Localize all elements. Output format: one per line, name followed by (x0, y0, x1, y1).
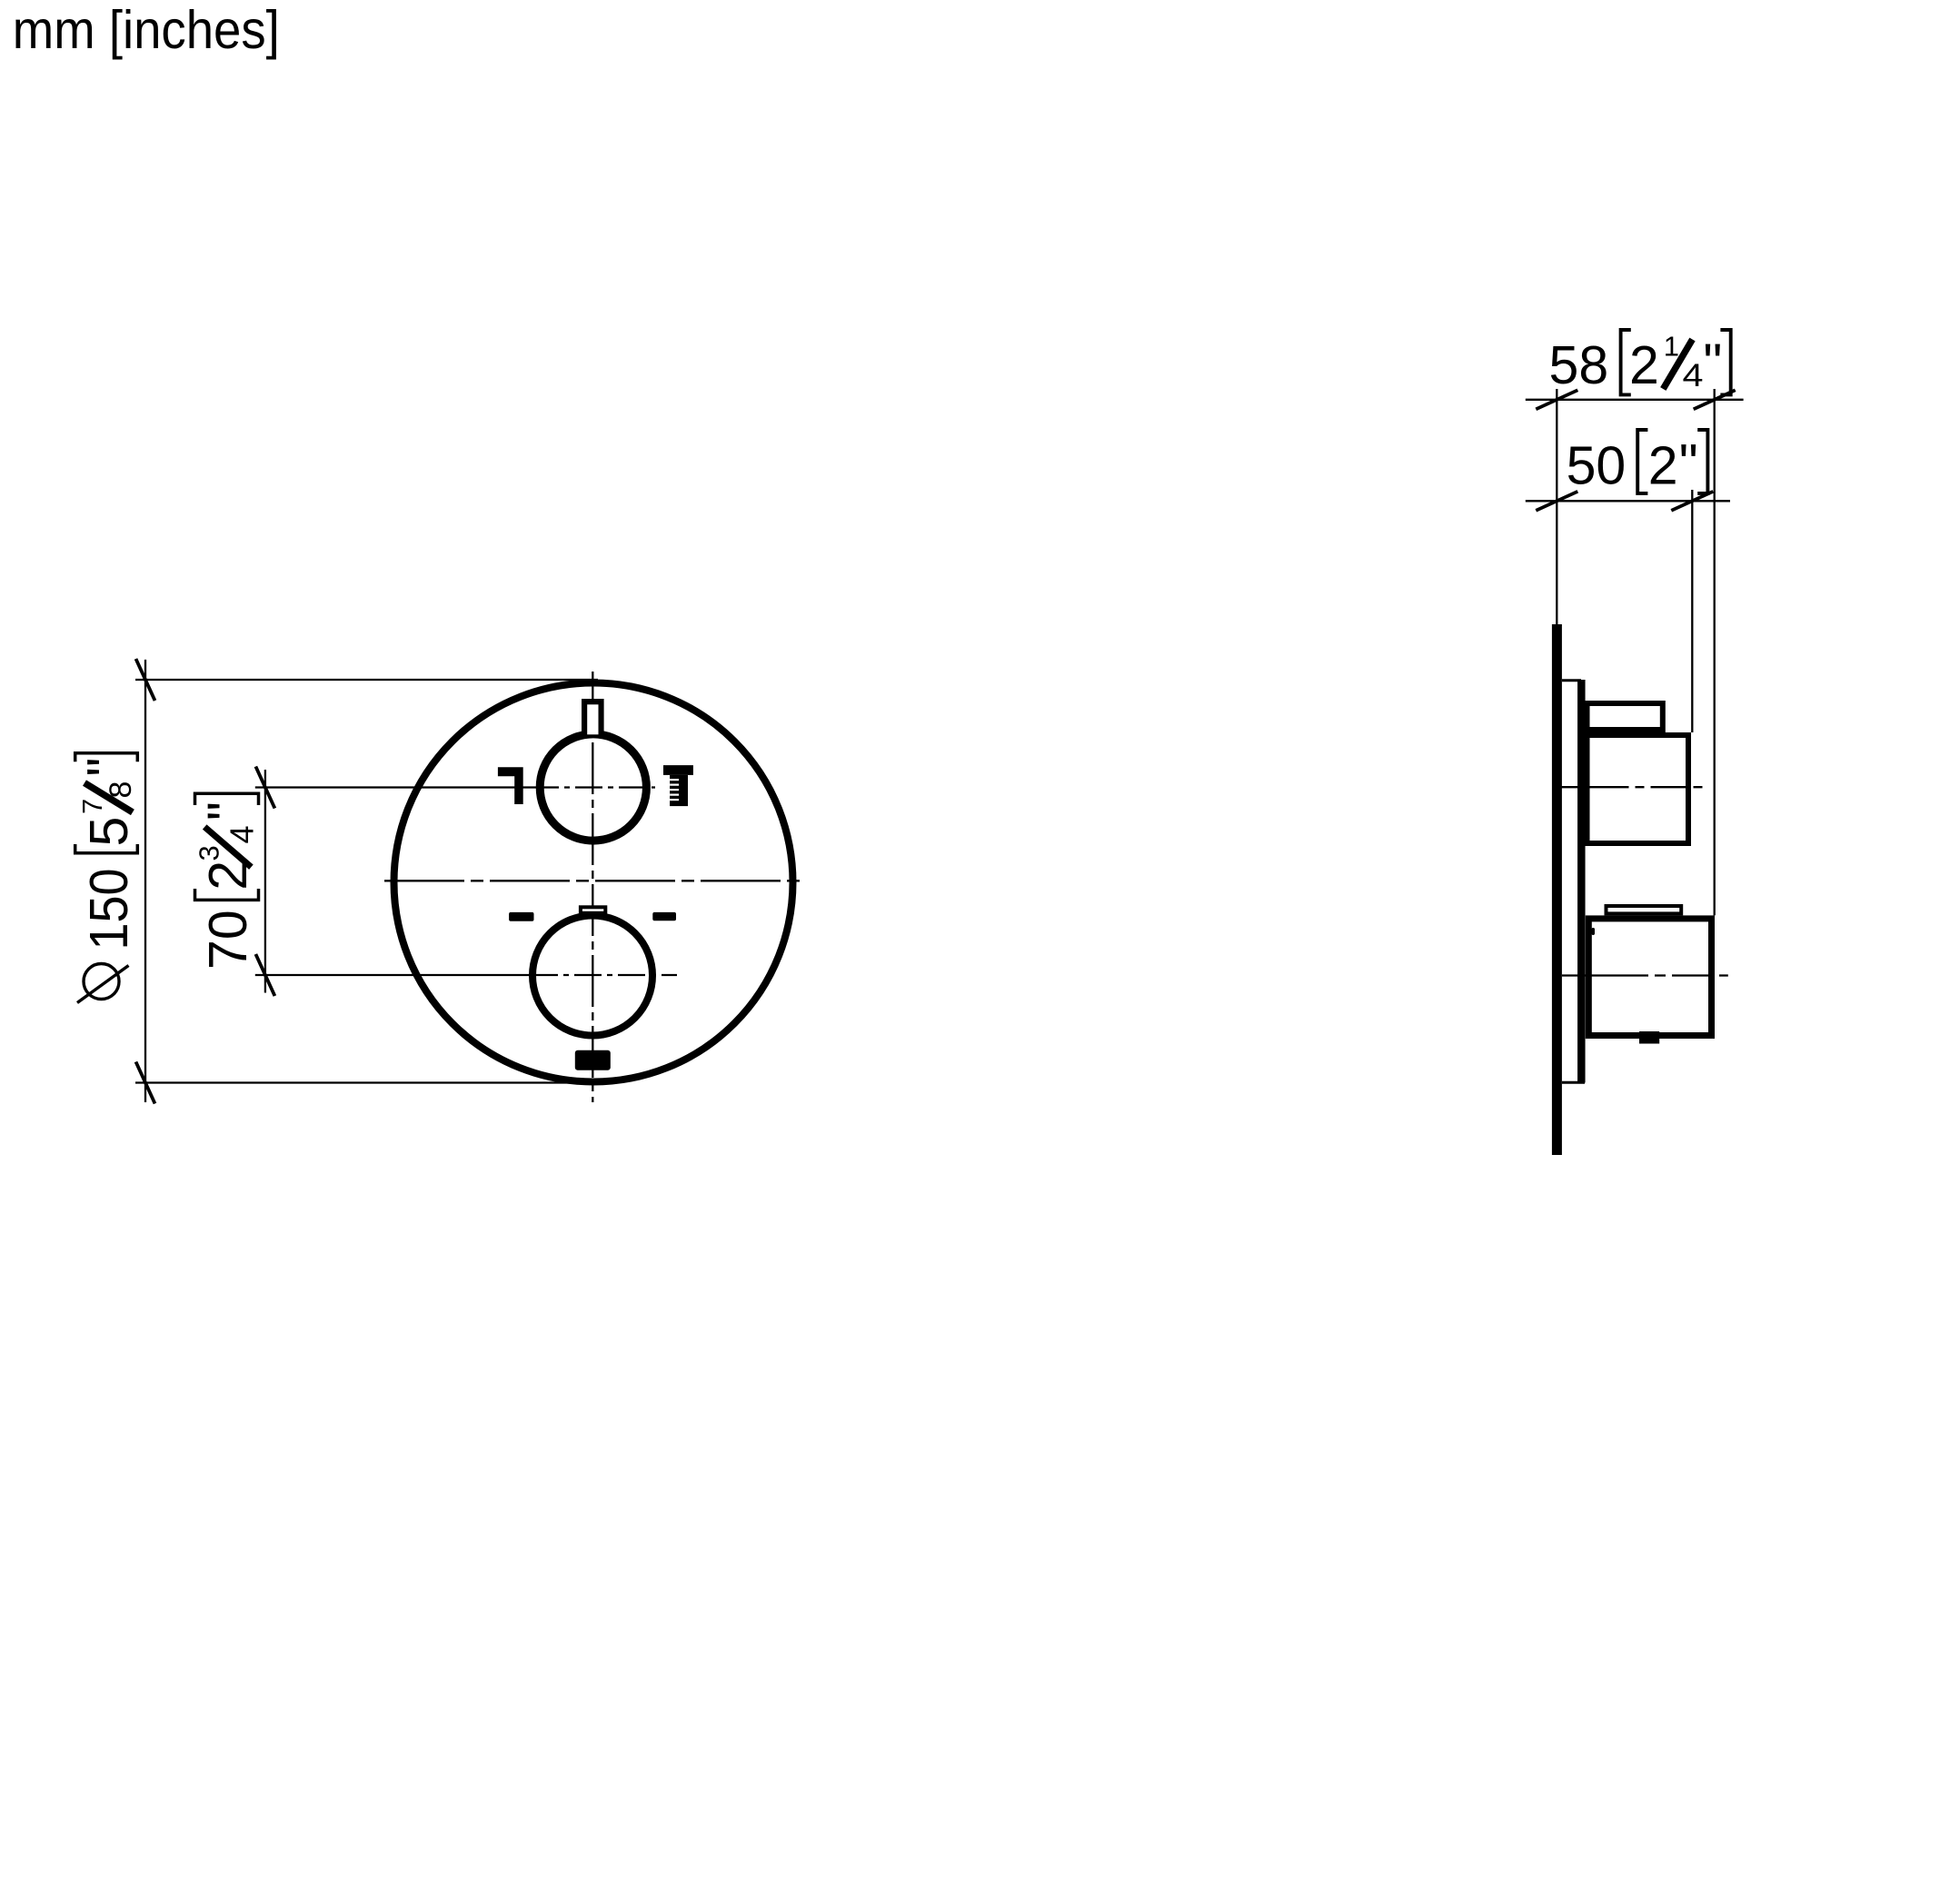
svg-text:": " (1703, 333, 1722, 393)
svg-text:7: 7 (76, 799, 108, 814)
svg-text:58: 58 (1549, 335, 1609, 395)
svg-text:2: 2 (1648, 436, 1678, 496)
svg-text:70: 70 (198, 910, 258, 970)
svg-text:": " (76, 758, 136, 777)
svg-text:3: 3 (193, 845, 224, 861)
svg-text:50: 50 (1567, 436, 1627, 496)
svg-text:4: 4 (1683, 357, 1704, 393)
svg-text:5: 5 (79, 817, 139, 847)
svg-text:mm [inches]: mm [inches] (13, 0, 280, 60)
svg-text:": " (197, 801, 257, 821)
svg-text:2: 2 (1629, 335, 1659, 395)
svg-text:1: 1 (1664, 331, 1679, 363)
svg-text:": " (1679, 433, 1698, 493)
svg-text:8: 8 (104, 781, 138, 799)
svg-text:4: 4 (224, 825, 261, 843)
svg-text:150: 150 (79, 869, 139, 950)
